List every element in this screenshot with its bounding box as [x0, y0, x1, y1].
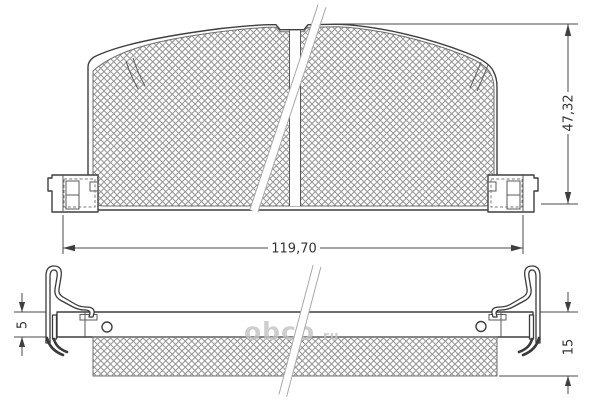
right-lug: [488, 175, 538, 212]
spring-clip-left: [46, 266, 94, 355]
arrowhead-up: [565, 376, 571, 386]
pad-face-view: [48, 5, 538, 213]
backplate-thickness-label: 5: [16, 321, 31, 329]
width-dimension-label: 119,70: [271, 242, 317, 257]
wear-groove: [290, 31, 301, 207]
spring-clip-right: [492, 266, 540, 355]
total-thickness-label: 15: [562, 339, 577, 356]
height-dimension-label: 47,32: [562, 94, 577, 131]
watermark-suffix: ru: [323, 329, 339, 343]
arrowhead-up: [565, 24, 571, 36]
rivet-hole-right: [476, 322, 486, 332]
arrowhead-down: [565, 302, 571, 312]
arrowhead-left: [63, 245, 75, 251]
left-lug: [48, 175, 98, 212]
arrowhead-up: [19, 337, 25, 347]
arrowhead-down: [565, 192, 571, 204]
technical-drawing-canvas: obco ru 119,70 47,32 5: [0, 0, 600, 400]
dimension-backplate-thickness: 5: [16, 293, 31, 356]
arrowhead-down: [19, 302, 25, 312]
dimension-overall-width: 119,70: [63, 215, 523, 257]
brake-pad-technical-drawing: obco ru 119,70 47,32 5: [0, 0, 600, 400]
dimension-total-thickness: 15: [562, 292, 577, 394]
pad-edge-view: obco ru: [14, 265, 578, 397]
arrowhead-right: [511, 245, 523, 251]
rivet-hole-left: [102, 322, 112, 332]
